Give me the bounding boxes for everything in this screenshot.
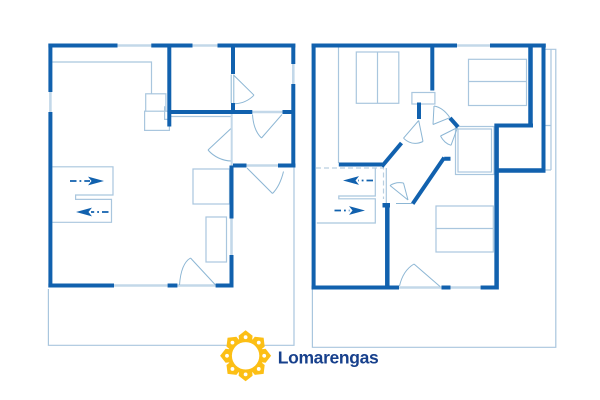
svg-text:Lomarengas: Lomarengas bbox=[278, 348, 379, 368]
